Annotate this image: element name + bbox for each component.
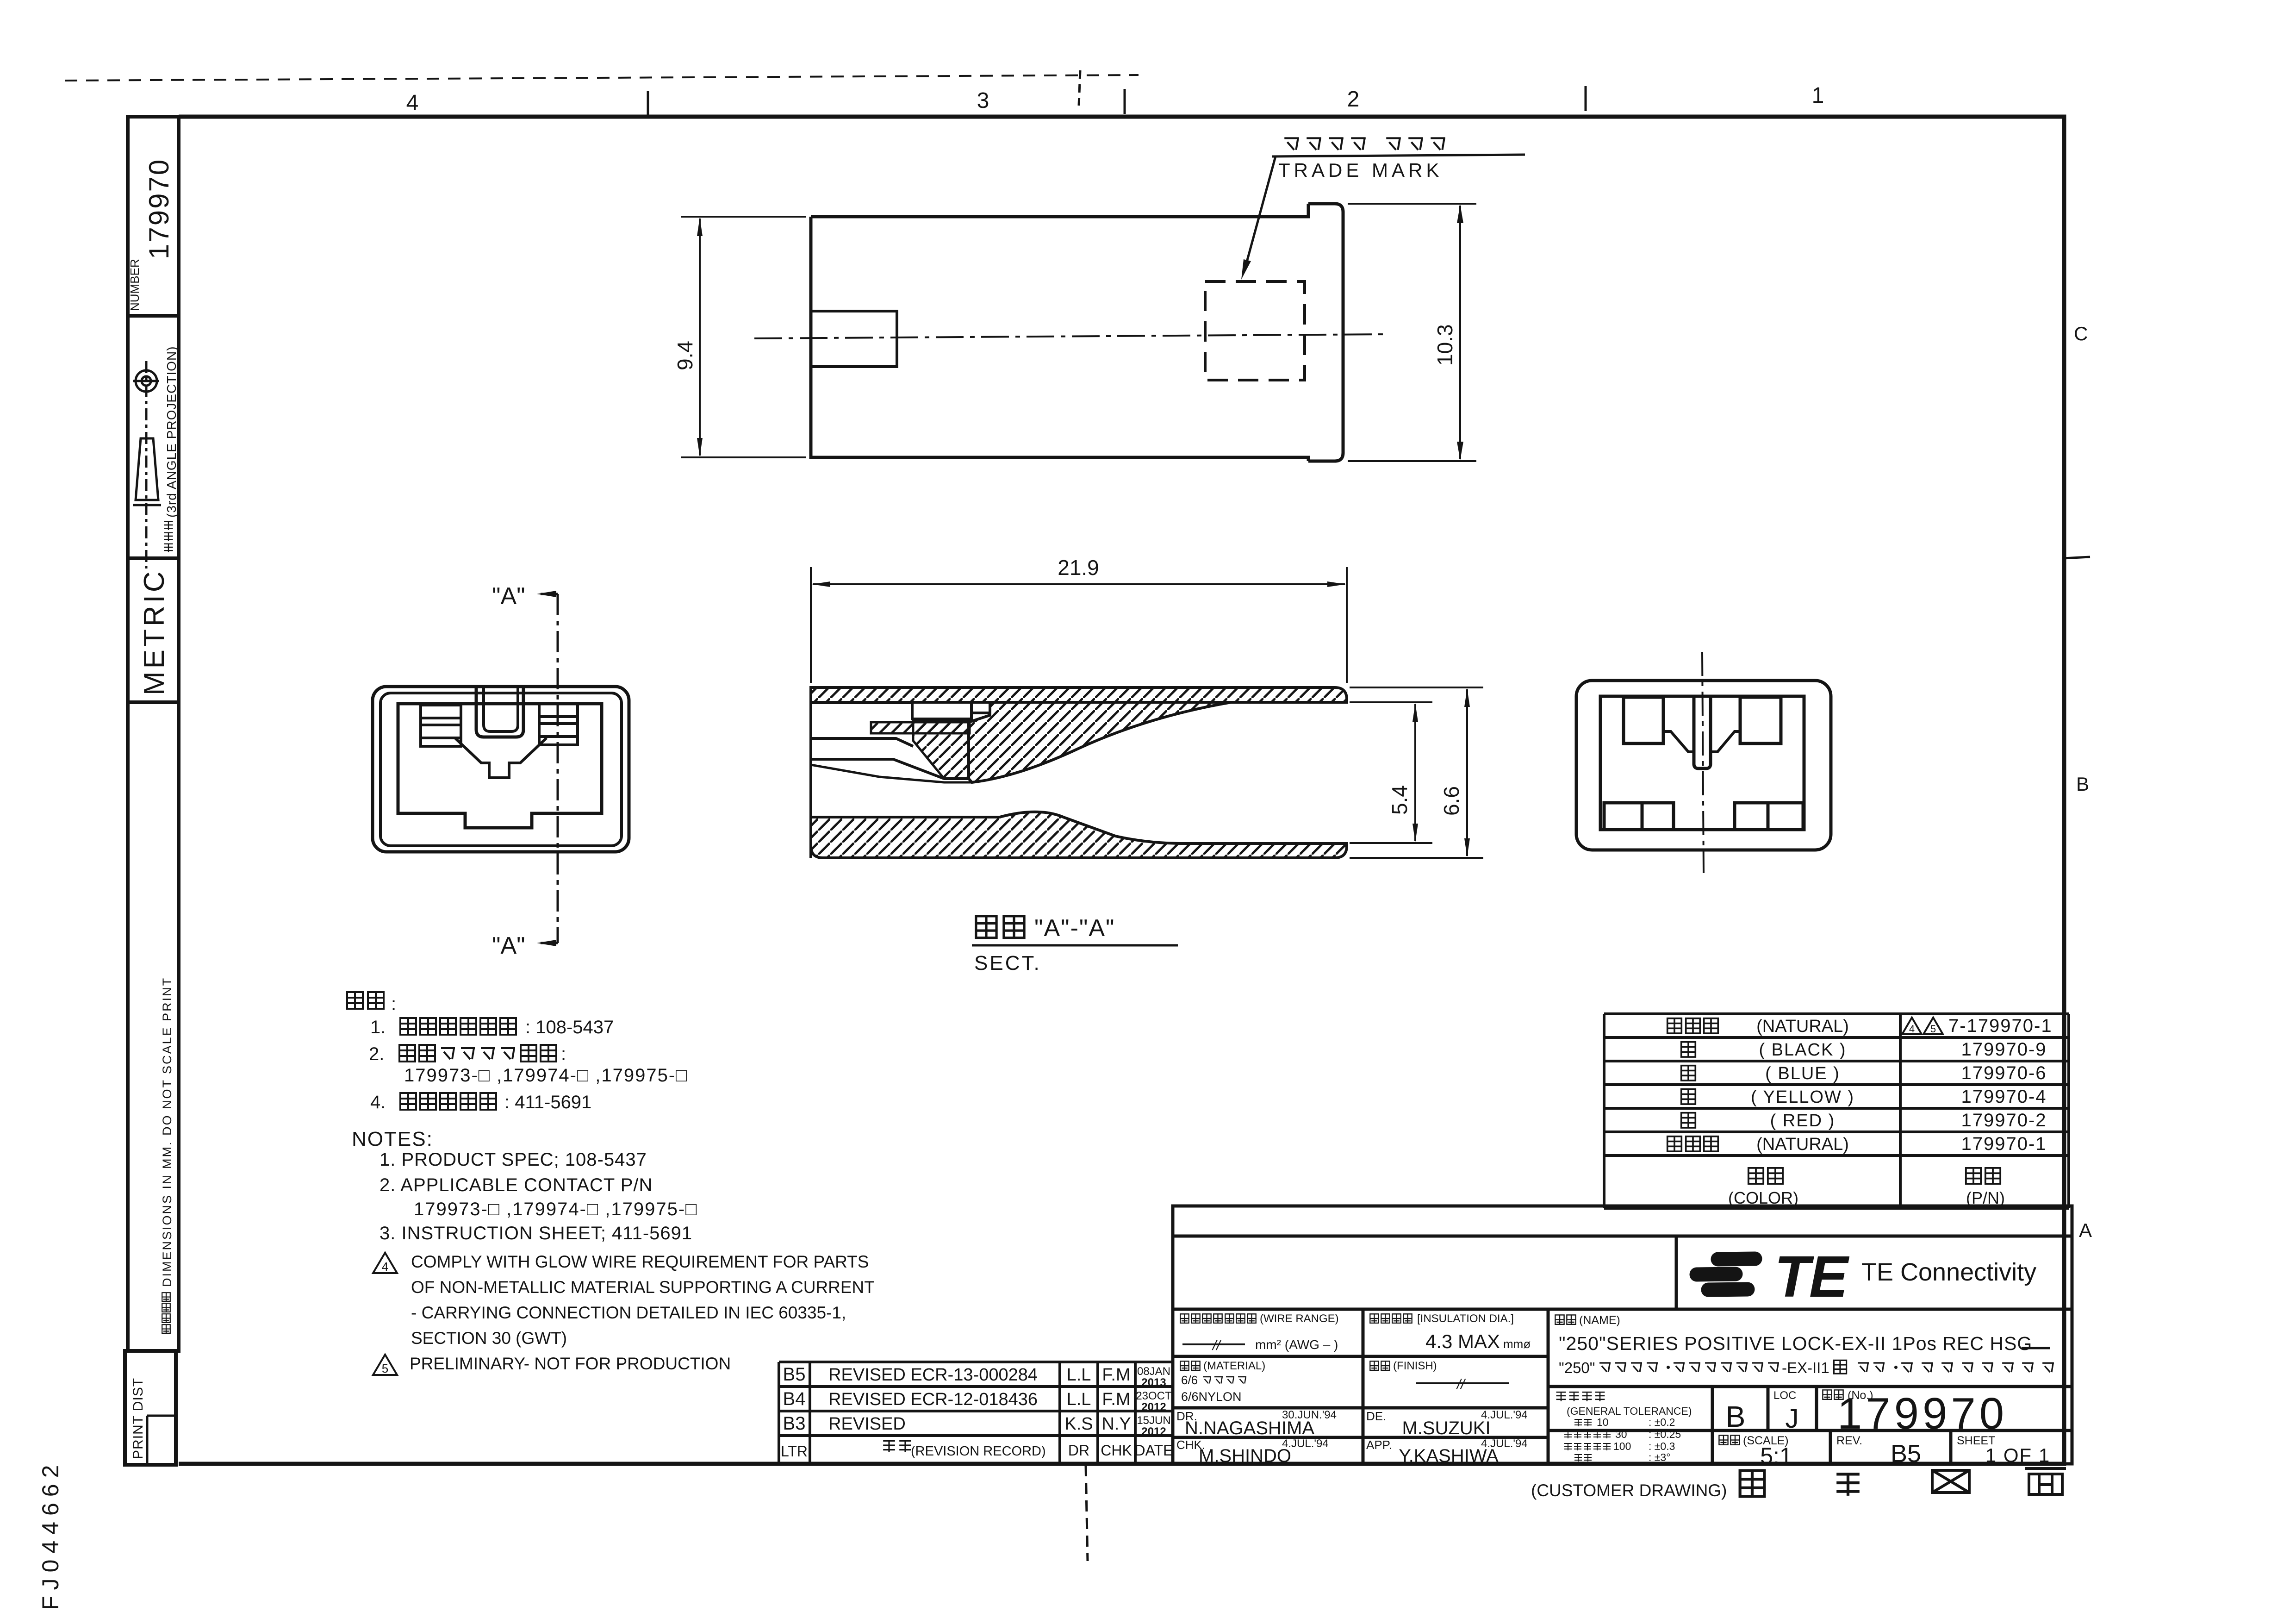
svg-text:9.4: 9.4: [673, 341, 697, 370]
svg-text::: :: [561, 1044, 566, 1064]
svg-text:179970-4: 179970-4: [1961, 1087, 2047, 1107]
svg-text:"250": "250": [1559, 1359, 1595, 1376]
svg-text:2013: 2013: [1141, 1376, 1166, 1389]
svg-text:( RED ): ( RED ): [1770, 1111, 1836, 1131]
svg-text:REV.: REV.: [1836, 1434, 1862, 1447]
svg-text:3. INSTRUCTION SHEET; 411-5691: 3. INSTRUCTION SHEET; 411-5691: [380, 1223, 692, 1243]
svg-text:mm² (AWG – ): mm² (AWG – ): [1255, 1337, 1338, 1352]
svg-text:LTR: LTR: [781, 1443, 808, 1460]
svg-text:: 108-5437: : 108-5437: [525, 1017, 614, 1037]
svg-text:2.: 2.: [369, 1044, 384, 1064]
svg-text:B: B: [2076, 773, 2089, 795]
svg-text:(NAME): (NAME): [1579, 1314, 1620, 1327]
svg-text:FJ044662: FJ044662: [37, 1459, 63, 1610]
svg-text:10: 10: [1597, 1416, 1609, 1428]
svg-text:L.L: L.L: [1067, 1365, 1091, 1385]
svg-text:NUMBER: NUMBER: [128, 259, 142, 311]
svg-text:08JAN: 08JAN: [1137, 1365, 1170, 1378]
svg-text:mmø: mmø: [1503, 1337, 1531, 1351]
svg-text:: ±0.25: : ±0.25: [1649, 1428, 1681, 1440]
svg-text:REVISED ECR-13-000284: REVISED ECR-13-000284: [828, 1365, 1038, 1385]
svg-text:6.6: 6.6: [1439, 786, 1463, 816]
svg-text:(NATURAL): (NATURAL): [1756, 1017, 1849, 1036]
svg-text:30: 30: [1615, 1428, 1627, 1440]
svg-text:2012: 2012: [1141, 1401, 1166, 1413]
svg-text:(NATURAL): (NATURAL): [1756, 1135, 1849, 1154]
svg-text:APP.: APP.: [1366, 1438, 1392, 1452]
svg-text:B3: B3: [783, 1413, 806, 1434]
svg-text:DIMENSIONS IN MM. DO NOT SCAL: DIMENSIONS IN MM. DO NOT SCALE PRINT: [160, 977, 174, 1287]
svg-text:B5: B5: [783, 1364, 806, 1385]
svg-text:DE.: DE.: [1366, 1409, 1386, 1423]
svg-text:DATE: DATE: [1135, 1442, 1173, 1459]
svg-text:Y.KASHIWA: Y.KASHIWA: [1399, 1446, 1499, 1466]
svg-text:5:1: 5:1: [1760, 1443, 1792, 1469]
svg-text:: 411-5691: : 411-5691: [504, 1092, 591, 1112]
svg-text:6/6NYLON: 6/6NYLON: [1181, 1390, 1242, 1404]
svg-text:5.4: 5.4: [1388, 785, 1412, 815]
svg-text:179970: 179970: [1837, 1389, 2008, 1438]
svg-text:4: 4: [1909, 1023, 1915, 1035]
svg-text:TE: TE: [1774, 1244, 1850, 1309]
svg-text:4.3 MAX: 4.3 MAX: [1425, 1330, 1500, 1352]
svg-text:21.9: 21.9: [1058, 556, 1099, 580]
svg-text:179970: 179970: [143, 158, 174, 259]
svg-text:179970-2: 179970-2: [1961, 1110, 2047, 1131]
svg-text:・: ・: [1888, 1359, 1904, 1376]
svg-text:SECT.: SECT.: [974, 952, 1041, 974]
svg-text:F.M: F.M: [1102, 1365, 1130, 1385]
svg-text:C: C: [2074, 323, 2088, 344]
svg-text:179970-1: 179970-1: [1961, 1134, 2047, 1154]
svg-text:(FINISH): (FINISH): [1393, 1360, 1437, 1372]
svg-text:: ±0.2: : ±0.2: [1649, 1416, 1675, 1428]
svg-text:"A"-"A": "A"-"A": [1034, 915, 1115, 942]
svg-text:N.NAGASHIMA: N.NAGASHIMA: [1185, 1418, 1314, 1438]
svg-text:B5: B5: [1891, 1440, 1921, 1468]
svg-text:M.SUZUKI: M.SUZUKI: [1402, 1418, 1490, 1438]
svg-text:K.S: K.S: [1064, 1414, 1093, 1434]
svg-text:N.Y: N.Y: [1101, 1414, 1131, 1434]
svg-text:7-179970-1: 7-179970-1: [1948, 1016, 2053, 1036]
svg-text:3: 3: [977, 88, 989, 113]
svg-text:179970-9: 179970-9: [1961, 1039, 2047, 1060]
svg-text:・: ・: [1661, 1359, 1676, 1376]
svg-text:"A": "A": [492, 932, 525, 959]
svg-text:TE Connectivity: TE Connectivity: [1861, 1258, 2036, 1286]
svg-text:SECTION 30 (GWT): SECTION 30 (GWT): [411, 1329, 567, 1348]
svg-text:10.3: 10.3: [1433, 324, 1457, 366]
svg-text:L.L: L.L: [1067, 1390, 1091, 1409]
svg-text:: ±3°: : ±3°: [1649, 1451, 1670, 1463]
svg-text:REVISED: REVISED: [828, 1414, 906, 1434]
svg-text:REVISED ECR-12-018436: REVISED ECR-12-018436: [828, 1390, 1038, 1409]
svg-text:4.: 4.: [370, 1092, 386, 1112]
svg-text://: //: [1212, 1338, 1221, 1353]
svg-text:1. PRODUCT SPEC; 108-5437: 1. PRODUCT SPEC; 108-5437: [380, 1149, 647, 1170]
svg-text:LOC: LOC: [1773, 1389, 1796, 1402]
svg-text:(3rd ANGLE PROJECTION): (3rd ANGLE PROJECTION): [164, 346, 179, 518]
svg-text:(GENERAL TOLERANCE): (GENERAL TOLERANCE): [1567, 1405, 1692, 1417]
svg-text:TRADE MARK: TRADE MARK: [1278, 159, 1443, 181]
svg-text:2: 2: [1347, 87, 1360, 112]
svg-text:DR: DR: [1068, 1442, 1089, 1459]
svg-text:100: 100: [1613, 1440, 1631, 1452]
svg-text:2012: 2012: [1141, 1425, 1166, 1438]
svg-text:J: J: [1786, 1404, 1799, 1434]
svg-text:CHK: CHK: [1101, 1442, 1132, 1459]
svg-text:1 OF 1: 1 OF 1: [1985, 1444, 2050, 1466]
svg-text:: ±0.3: : ±0.3: [1649, 1440, 1675, 1452]
svg-text:2. APPLICABLE CONTACT P/N: 2. APPLICABLE CONTACT P/N: [380, 1175, 653, 1195]
svg-text:COMPLY WITH GLOW WIRE REQUIREM: COMPLY WITH GLOW WIRE REQUIREMENT FOR PA…: [411, 1252, 869, 1271]
svg-text:1: 1: [1812, 83, 1824, 108]
svg-text:M.SHINDO: M.SHINDO: [1199, 1446, 1291, 1466]
svg-text:METRIC: METRIC: [138, 568, 170, 695]
svg-text:6/6: 6/6: [1181, 1373, 1198, 1387]
svg-text:( BLUE ): ( BLUE ): [1765, 1064, 1840, 1083]
svg-text:4: 4: [382, 1260, 388, 1274]
svg-text:( YELLOW ): ( YELLOW ): [1751, 1087, 1854, 1107]
svg-text:"250"SERIES POSITIVE LOCK-EX-I: "250"SERIES POSITIVE LOCK-EX-II 1Pos REC…: [1559, 1333, 2032, 1354]
svg-text:( BLACK ): ( BLACK ): [1759, 1040, 1846, 1060]
svg-text:PRELIMINARY- NOT FOR PRODUCTIO: PRELIMINARY- NOT FOR PRODUCTION: [410, 1354, 731, 1373]
svg-text://: //: [1456, 1377, 1466, 1392]
svg-text::: :: [391, 994, 396, 1014]
svg-text:(MATERIAL): (MATERIAL): [1203, 1360, 1265, 1372]
svg-text:(WIRE RANGE): (WIRE RANGE): [1260, 1312, 1339, 1325]
svg-text:5: 5: [382, 1362, 388, 1375]
svg-text:23OCT: 23OCT: [1136, 1390, 1172, 1402]
svg-text:179973-□ ,179974-□ ,179975-□: 179973-□ ,179974-□ ,179975-□: [414, 1199, 697, 1219]
svg-text:179973-□ ,179974-□ ,179975-□: 179973-□ ,179974-□ ,179975-□: [404, 1065, 688, 1086]
svg-text:F.M: F.M: [1102, 1390, 1130, 1409]
svg-text:15JUN: 15JUN: [1137, 1414, 1170, 1427]
svg-text:PRINT DIST: PRINT DIST: [131, 1378, 146, 1459]
svg-text:"A": "A": [492, 583, 525, 610]
svg-text:5: 5: [1930, 1023, 1936, 1035]
svg-text:(REVISION RECORD): (REVISION RECORD): [911, 1444, 1046, 1459]
svg-text:- CARRYING CONNECTION DETAILED: - CARRYING CONNECTION DETAILED IN IEC 60…: [411, 1303, 846, 1322]
svg-text:B: B: [1726, 1400, 1746, 1433]
svg-text:(CUSTOMER DRAWING): (CUSTOMER DRAWING): [1531, 1481, 1727, 1500]
svg-text:B4: B4: [783, 1389, 806, 1409]
svg-text:[INSULATION DIA.]: [INSULATION DIA.]: [1417, 1312, 1514, 1325]
svg-text:1.: 1.: [370, 1017, 386, 1037]
svg-text:A: A: [2079, 1219, 2092, 1241]
svg-text:NOTES:: NOTES:: [352, 1128, 433, 1150]
svg-text:4: 4: [406, 91, 419, 115]
svg-text:OF NON-METALLIC MATERIAL SUPPO: OF NON-METALLIC MATERIAL SUPPORTING A CU…: [411, 1278, 875, 1297]
svg-text:179970-6: 179970-6: [1961, 1063, 2047, 1083]
svg-text:-EX-II1: -EX-II1: [1782, 1359, 1829, 1376]
